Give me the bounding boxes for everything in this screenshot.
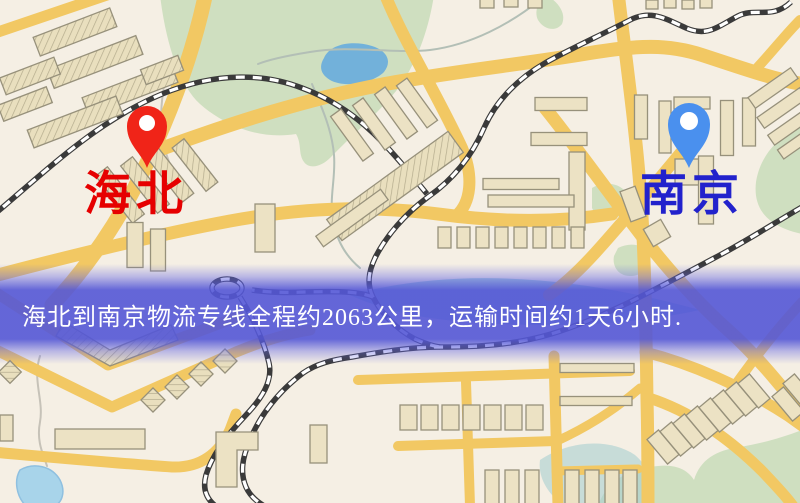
map-view[interactable]: 海北 南京 海北到南京物流专线全程约2063公里，运输时间约1天6小时. [0,0,800,503]
route-info-banner: 海北到南京物流专线全程约2063公里，运输时间约1天6小时. [0,264,800,364]
map-canvas [0,0,800,503]
pin-inner-dot [139,115,155,131]
destination-city-label: 南京 [640,172,744,219]
origin-city-label: 海北 [84,172,188,219]
route-info-text: 海北到南京物流专线全程约2063公里，运输时间约1天6小时. [0,297,682,332]
pin-inner-dot [680,112,698,130]
